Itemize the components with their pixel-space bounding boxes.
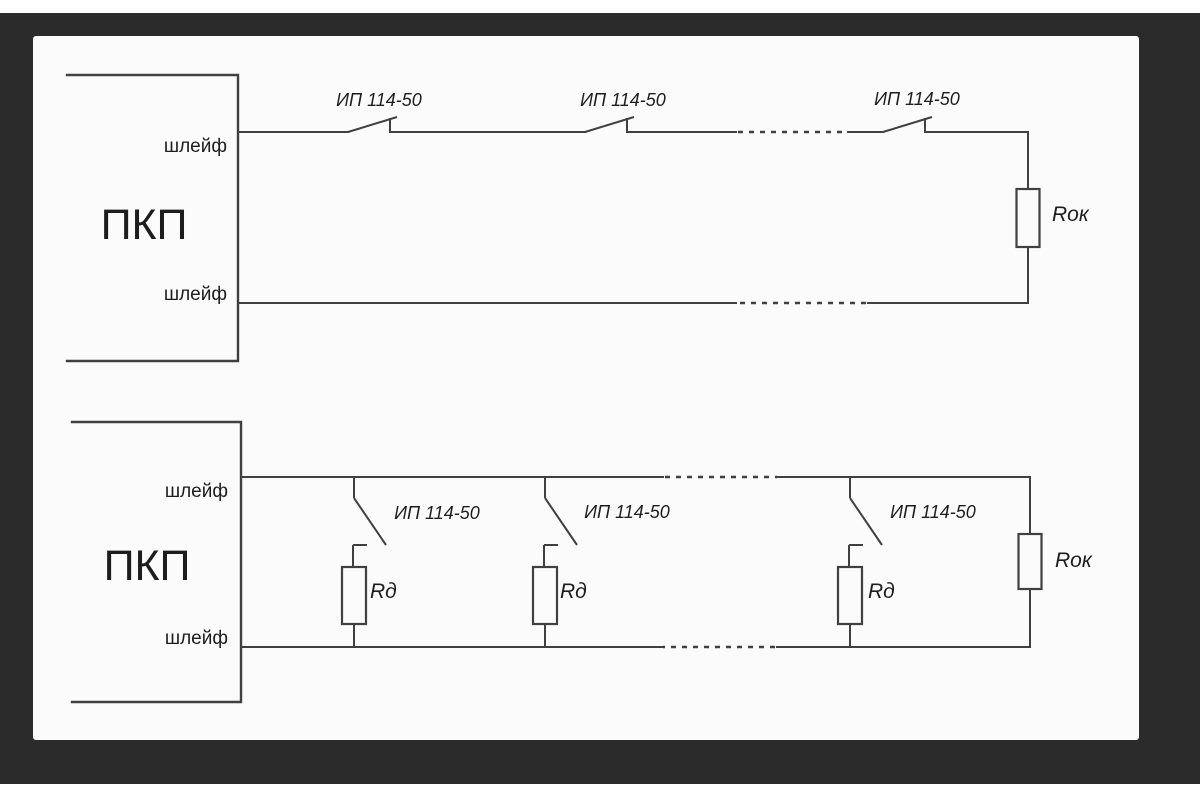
- loop-terminal-label-bottom: шлейф: [164, 284, 227, 305]
- branch-resistor-body: [342, 567, 366, 624]
- eol-resistor-body: [1019, 534, 1042, 589]
- detector-label: ИП 114-50: [890, 502, 976, 522]
- detector-label: ИП 114-50: [580, 90, 666, 110]
- loop-terminal-label-top: шлейф: [164, 136, 227, 157]
- branch-resistor-body: [533, 567, 557, 624]
- schematic-canvas: ПКП шлейф шлейф ИП 114-50 ИП 114-50 ИП 1…: [0, 0, 1200, 800]
- branch-resistor-label: Rд: [370, 580, 397, 603]
- eol-resistor-label: Rок: [1055, 549, 1093, 572]
- branch-resistor-label: Rд: [868, 580, 895, 603]
- screenshot: ПКП шлейф шлейф ИП 114-50 ИП 114-50 ИП 1…: [0, 0, 1200, 800]
- control-panel-label: ПКП: [104, 542, 191, 590]
- detector-label: ИП 114-50: [584, 502, 670, 522]
- detector-label: ИП 114-50: [394, 503, 480, 523]
- eol-resistor-body: [1017, 189, 1040, 247]
- branch-resistor-label: Rд: [560, 580, 587, 603]
- branch-resistor-body: [838, 567, 862, 624]
- detector-label: ИП 114-50: [336, 90, 422, 110]
- loop-terminal-label-top: шлейф: [165, 481, 228, 502]
- loop-terminal-label-bottom: шлейф: [165, 628, 228, 649]
- detector-label: ИП 114-50: [874, 89, 960, 109]
- control-panel-label: ПКП: [101, 201, 188, 249]
- eol-resistor-label: Rок: [1052, 203, 1090, 226]
